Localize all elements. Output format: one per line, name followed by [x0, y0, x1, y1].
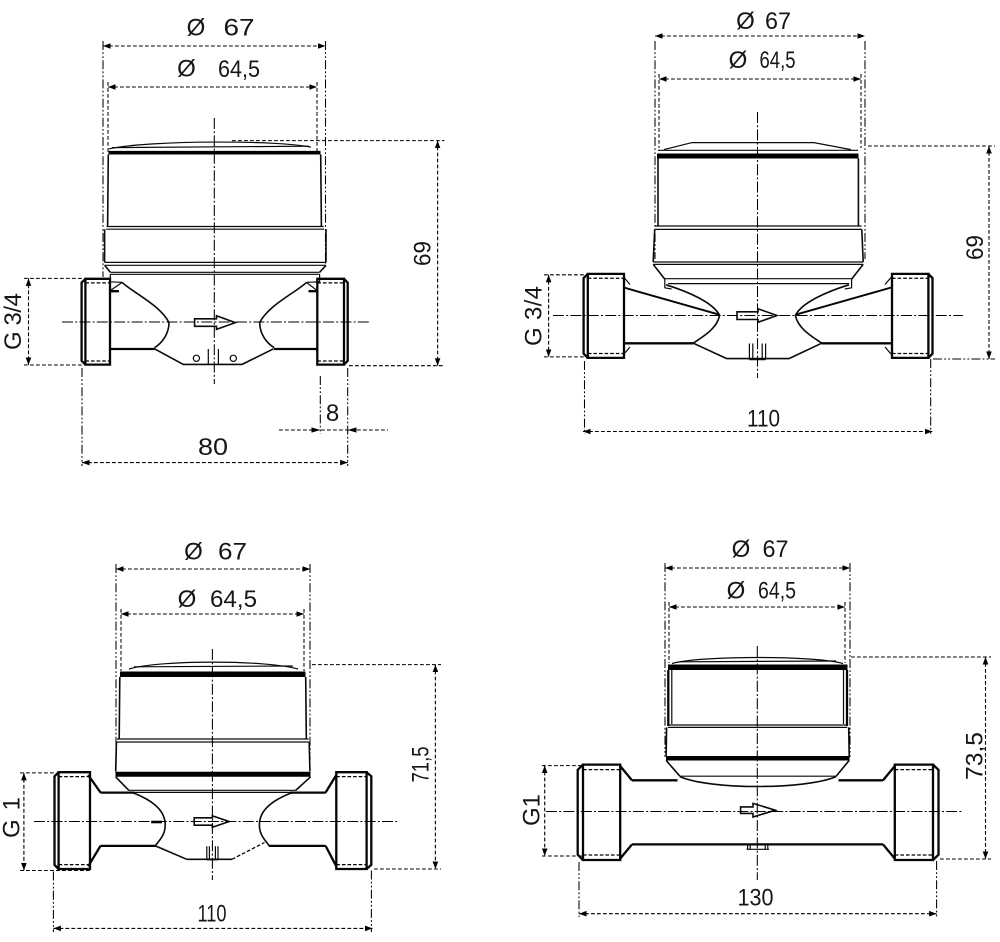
svg-text:Ø: Ø — [178, 586, 197, 613]
svg-text:Ø: Ø — [729, 47, 748, 74]
svg-text:8: 8 — [326, 400, 339, 427]
svg-text:G 1: G 1 — [519, 794, 546, 826]
svg-text:G 3/4: G 3/4 — [0, 293, 27, 350]
svg-text:67: 67 — [763, 536, 789, 563]
svg-text:80: 80 — [198, 434, 228, 461]
svg-text:71,5: 71,5 — [408, 747, 435, 783]
svg-text:67: 67 — [218, 539, 247, 566]
svg-text:130: 130 — [738, 885, 774, 912]
svg-text:64,5: 64,5 — [760, 47, 796, 74]
svg-text:73,5: 73,5 — [962, 732, 989, 780]
svg-text:67: 67 — [224, 15, 255, 42]
svg-text:64,5: 64,5 — [758, 578, 796, 605]
svg-text:67: 67 — [765, 8, 791, 35]
svg-text:G 3/4: G 3/4 — [521, 286, 548, 346]
svg-text:64,5: 64,5 — [210, 586, 257, 613]
svg-text:69: 69 — [410, 241, 437, 266]
svg-text:69: 69 — [962, 235, 989, 260]
svg-text:Ø: Ø — [732, 536, 751, 563]
svg-text:64,5: 64,5 — [218, 56, 260, 83]
svg-text:Ø: Ø — [736, 8, 755, 35]
svg-text:Ø: Ø — [177, 56, 196, 83]
svg-text:Ø: Ø — [187, 15, 206, 42]
svg-text:G 1: G 1 — [0, 797, 26, 838]
svg-text:Ø: Ø — [184, 539, 203, 566]
svg-text:Ø: Ø — [727, 578, 746, 605]
svg-text:110: 110 — [747, 406, 780, 433]
svg-text:110: 110 — [198, 901, 227, 928]
